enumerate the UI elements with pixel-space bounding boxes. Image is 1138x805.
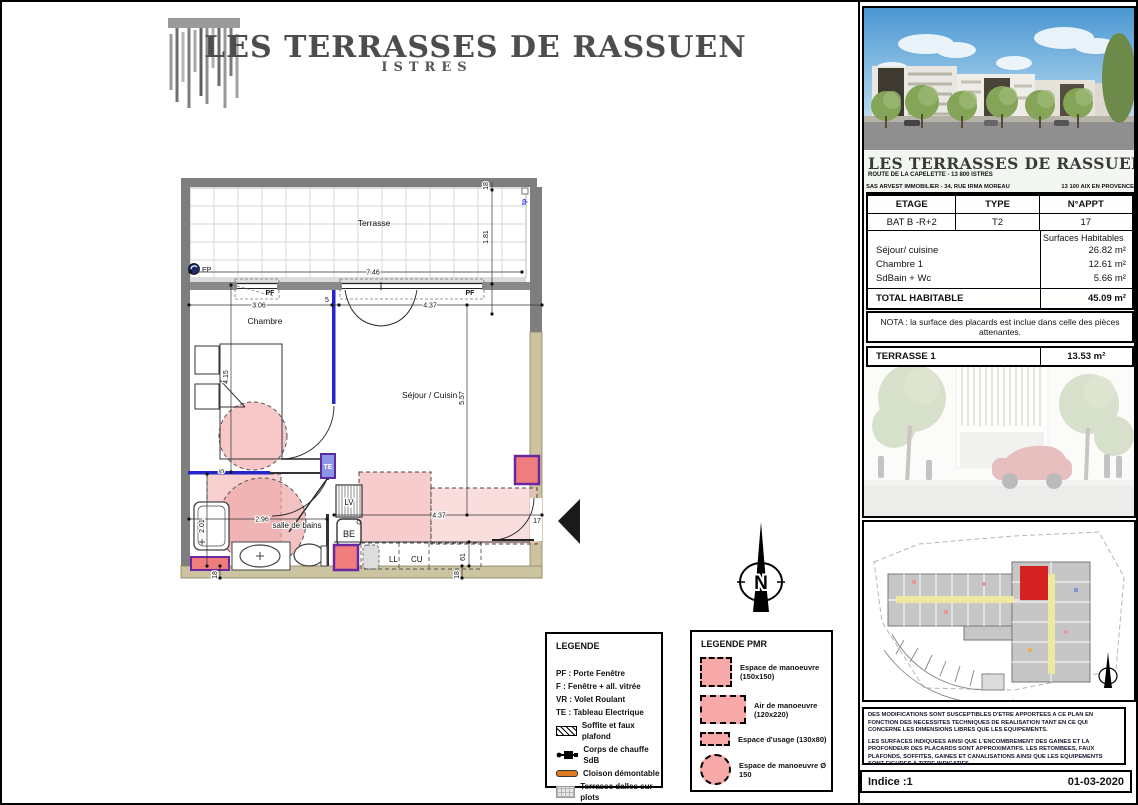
surface-label-sdb: SdBain + Wc [876,273,1040,284]
radiator-icon [556,750,578,760]
title-block: LES TERRASSES DE RASSUEN ROUTE DE LA CAP… [862,6,1136,518]
gaine-3 [191,557,229,570]
chambre-label: Chambre [248,316,283,326]
terrasse-label: Terrasse [358,218,391,228]
pmr-item-air-manoeuvre: Air de manoeuvre(120x220) [692,691,831,728]
total-label: TOTAL HABITABLE [868,289,1040,308]
developer-row: SAS ARVEST IMMOBILIER - 34, RUE IRMA MOR… [866,184,1134,194]
panel-address: ROUTE DE LA CAPELETTE - 13 800 ISTRES [868,172,993,178]
svg-text:4.37: 4.37 [423,303,437,310]
north-arrow: N [735,520,787,620]
nota-box: NOTA : la surface des placards est inclu… [866,311,1134,343]
partition-chambre [332,290,336,404]
terrasse-label: TERRASSE 1 [868,348,1040,365]
surface-value-sejour: 26.82 m² [1041,245,1126,256]
partition-bain [188,471,270,475]
svg-text:18: 18 [454,571,461,579]
surface-value-sdb: 5.66 m² [1041,273,1126,284]
surfaces-header: Surfaces Habitables [1041,233,1126,243]
door-chambre [281,406,334,459]
sheet-subtitle: ISTRES [302,60,552,75]
sejour-label: Séjour / Cuisine [402,390,462,400]
svg-text:17: 17 [533,518,541,525]
right-panel: LES TERRASSES DE RASSUEN ROUTE DE LA CAP… [860,2,1138,805]
svg-text:18: 18 [212,571,219,579]
val-etage: BAT B -R+2 [868,214,956,230]
indice-label: Indice :1 [868,776,913,788]
notes-box: DES MODIFICATIONS SONT SUSCEPTIBLES D'ET… [862,707,1126,765]
total-value: 45.09 m² [1040,289,1132,308]
soffite-swatch-icon [556,726,577,736]
kitchen-appliances: LL CU [334,542,530,569]
svg-text:5.57: 5.57 [459,391,466,405]
svg-text:5: 5 [219,469,226,473]
panel-title: LES TERRASSES DE RASSUEN [868,154,1136,173]
val-type: T2 [956,214,1039,230]
pmr-item-usage: Espace d'usage (130x80) [692,728,831,750]
site-plan-image [864,522,1134,700]
developer-name: SAS ARVEST IMMOBILIER - 34, RUE IRMA MOR… [866,184,1010,190]
ll-label: LL [389,555,398,564]
col-type: TYPE [956,196,1039,213]
legend-item-pf: PF : Porte Fenêtre [547,667,661,680]
gaine-2 [515,456,539,484]
svg-text:4.15: 4.15 [223,370,230,384]
svg-text:61: 61 [460,553,467,561]
tp-label: tp [521,199,528,205]
pf-label-2: PF [466,290,476,297]
terrasse-value: 13.53 m² [1040,348,1132,365]
apartment-table: ETAGE TYPE N°APPT BAT B -R+2 T2 17 Séjou… [866,194,1134,310]
legend-item-te: TE : Tableau Electrique [547,706,661,719]
washbasin [232,542,290,570]
pmr-item-manoeuvre-150: Espace de manoeuvre(150x150) [692,653,831,691]
revision-bar: Indice :1 01-03-2020 [860,770,1132,793]
svg-text:7.46: 7.46 [366,270,380,277]
col-appt: N°APPT [1040,196,1132,213]
legend-item-corps-chauffe: Corps de chauffe SdB [547,743,661,767]
wc [294,544,327,566]
indice-date: 01-03-2020 [1068,776,1124,788]
lv-label: LV [344,498,354,507]
site-plan-box [862,520,1136,702]
plan-sheet-page: LES TERRASSES DE RASSUEN ISTRES [0,0,1138,805]
legend-item-f: F : Fenêtre + all. vitrée [547,680,661,693]
cu-label: CU [411,555,423,564]
pmr-circle-chambre [219,402,287,470]
col-etage: ETAGE [868,196,956,213]
surface-value-chambre: 12.61 m² [1041,259,1126,270]
pmr-rect-cuisine-2 [431,488,537,544]
legend-item-soffite: Soffite et faux plafond [547,719,661,743]
surface-label-sejour: Séjour/ cuisine [876,245,1040,256]
cloison-swatch-icon [556,770,578,777]
wall-right-upper [530,187,542,332]
te-label: TE [324,464,333,471]
window-pf-sejour [340,279,484,326]
svg-text:2.96: 2.96 [255,517,269,524]
notes-paragraph-2: LES SURFACES INDIQUEES AINSI QUE L'ENCOM… [868,739,1120,769]
svg-text:4.37: 4.37 [432,513,446,520]
legend-title: LEGENDE [547,634,661,655]
svg-text:1.81: 1.81 [483,230,490,244]
pmr-item-manoeuvre-circle: Espace de manoeuvre Ø 150 [692,750,831,789]
svg-text:3.06: 3.06 [252,303,266,310]
gaine-1 [334,545,358,570]
legend-pmr-title: LEGENDE PMR [692,632,831,653]
site-north-arrow-icon [1099,652,1117,688]
floor-plan: PF PF [177,174,582,598]
notes-paragraph-1: DES MODIFICATIONS SONT SUSCEPTIBLES D'ET… [868,712,1120,735]
terrasse-row: TERRASSE 1 13.53 m² [866,346,1134,367]
pmr-rect-icon [700,695,746,724]
be-label: BE [343,529,355,539]
dalles-swatch-icon [556,786,575,798]
svg-text:18: 18 [483,182,490,190]
ep-label: EP [202,267,212,274]
legend-item-vr: VR : Volet Roulant [547,693,661,706]
entry-arrow-icon [558,499,580,544]
north-letter: N [754,573,768,594]
pmr-circle-icon [700,754,731,785]
pmr-small-rect-icon [700,732,730,746]
legend-item-cloison: Cloison démontable [547,767,661,780]
developer-city: 13 100 AIX EN PROVENCE [1061,184,1134,190]
legend-item-dalles: Terrasse dalles sur plots [547,780,661,804]
highlighted-unit [1020,566,1048,600]
surface-label-chambre: Chambre 1 [876,259,1040,270]
legend-box: LEGENDE PF : Porte Fenêtre F : Fenêtre +… [545,632,663,788]
svg-text:2.01: 2.01 [199,519,206,533]
pf-label-1: PF [266,290,276,297]
svg-text:5: 5 [325,297,329,304]
legend-pmr-box: LEGENDE PMR Espace de manoeuvre(150x150)… [690,630,833,792]
val-appt: 17 [1040,214,1132,230]
building-render-image [864,8,1134,150]
pmr-square-icon [700,657,732,687]
lv-box: LV [336,485,362,517]
pmr-rect-cuisine-1 [359,472,431,542]
street-render-image [864,356,1134,518]
sdb-label: salle de bains [273,521,322,530]
